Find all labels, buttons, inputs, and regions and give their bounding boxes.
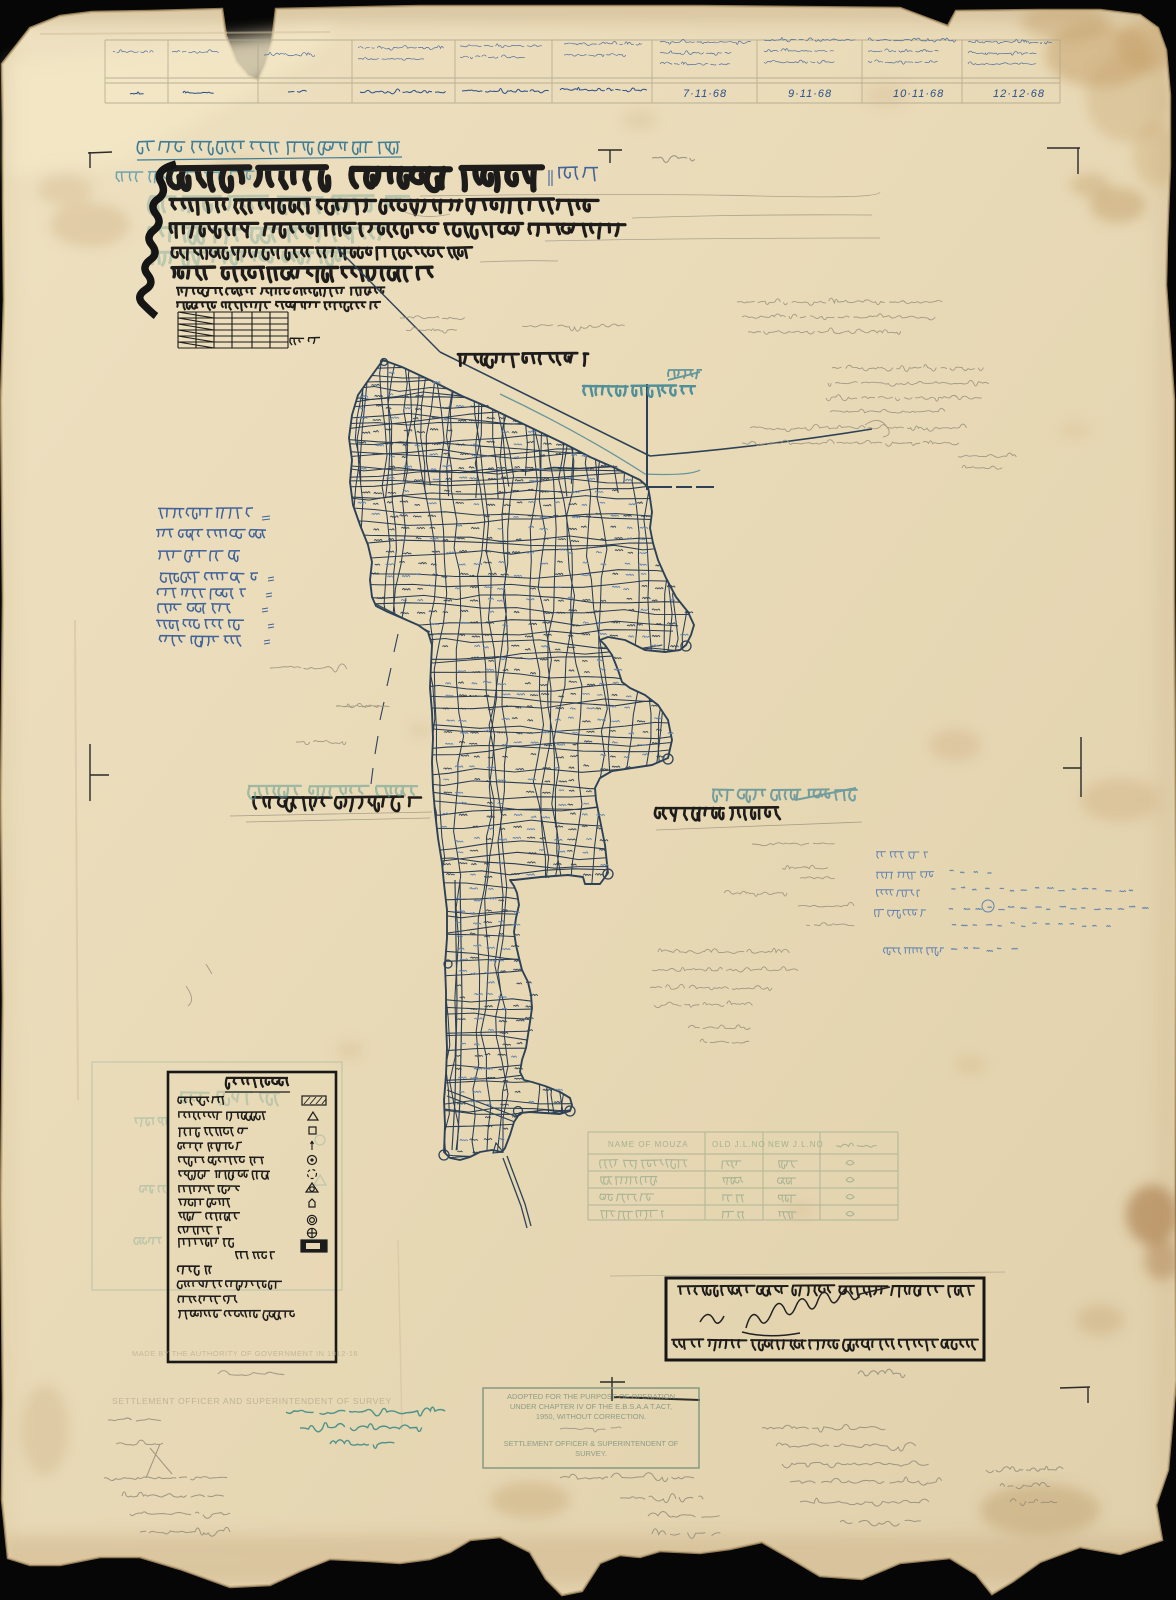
- svg-text:1950, WITHOUT CORRECTION.: 1950, WITHOUT CORRECTION.: [536, 1412, 646, 1421]
- svg-text:ADOPTED FOR THE PURPOSE OF OPE: ADOPTED FOR THE PURPOSE OF OPERATION: [507, 1392, 675, 1401]
- svg-text:SETTLEMENT OFFICER & SUPERINTE: SETTLEMENT OFFICER & SUPERINTENDENT OF: [504, 1439, 679, 1448]
- svg-text:MADE BY THE AUTHORITY OF GOVER: MADE BY THE AUTHORITY OF GOVERNMENT IN 1…: [132, 1349, 358, 1358]
- svg-text:UNDER CHAPTER IV OF THE E.B.S.: UNDER CHAPTER IV OF THE E.B.S.A.A T.ACT,: [510, 1402, 672, 1411]
- svg-text:NEW J.L.NO: NEW J.L.NO: [768, 1140, 824, 1149]
- svg-text:10·11·68: 10·11·68: [893, 88, 944, 100]
- svg-text:OLD J.L.NO: OLD J.L.NO: [712, 1140, 766, 1149]
- svg-text:12·12·68: 12·12·68: [993, 88, 1045, 100]
- svg-text:SURVEY.: SURVEY.: [575, 1449, 607, 1458]
- svg-text:7·11·68: 7·11·68: [683, 88, 727, 100]
- svg-text:9·11·68: 9·11·68: [788, 88, 832, 100]
- svg-text:SETTLEMENT OFFICER AND SUPERIN: SETTLEMENT OFFICER AND SUPERINTENDENT OF…: [112, 1396, 392, 1406]
- svg-text:NAME OF MOUZA: NAME OF MOUZA: [608, 1140, 689, 1149]
